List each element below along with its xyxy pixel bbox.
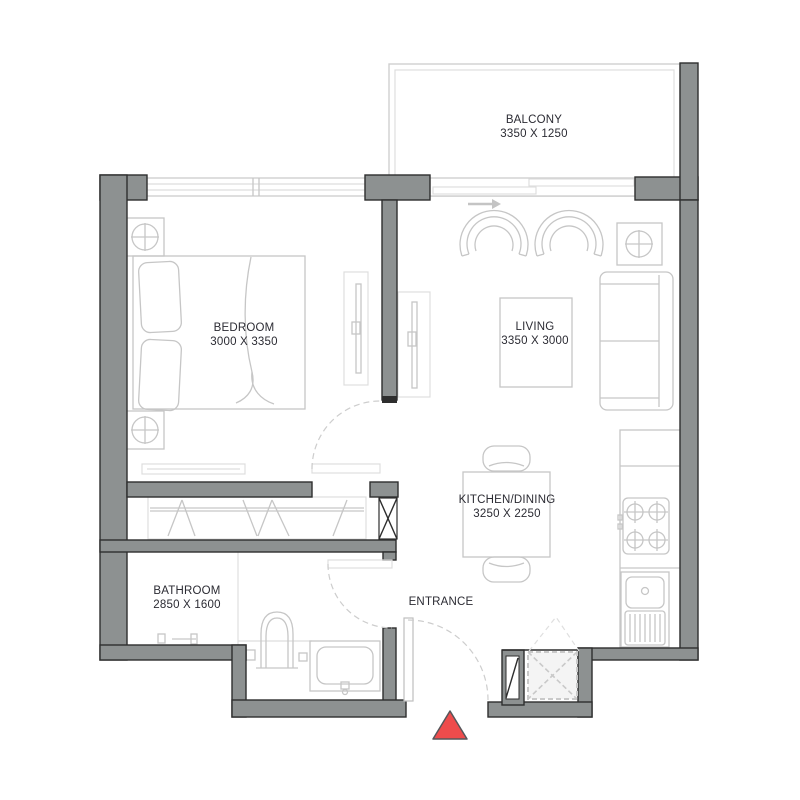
- bedroom-label: BEDROOM: [214, 322, 275, 334]
- bathroom-door: [328, 560, 392, 628]
- nightstand-top: [126, 218, 164, 256]
- bathroom-fixtures: [158, 552, 380, 695]
- bedroom-dims: 3000 X 3350: [210, 336, 277, 348]
- floor-plan-page: BALCONY 3350 X 1250 BEDROOM 3000 X 3350 …: [0, 0, 800, 800]
- living-dims: 3350 X 3000: [501, 335, 568, 347]
- toilet-icon: [246, 612, 307, 668]
- floor-plan-drawing: BALCONY 3350 X 1250 BEDROOM 3000 X 3350 …: [0, 0, 800, 800]
- balcony-sliding-door: [430, 178, 635, 209]
- sofa: [600, 272, 673, 410]
- living-furniture: [398, 211, 673, 410]
- bedroom-tv-unit: [344, 272, 368, 385]
- kitchen-dining-dims: 3250 X 2250: [473, 508, 540, 520]
- entrance-label: ENTRANCE: [409, 596, 474, 608]
- living-tv-unit: [398, 292, 430, 397]
- bedroom-window: [147, 178, 365, 196]
- nightstand-bottom: [126, 411, 164, 449]
- entrance-side-panel: [502, 650, 524, 705]
- bed-bench: [142, 464, 245, 474]
- slide-direction-arrow-icon: [468, 199, 501, 209]
- bathroom-dims: 2850 X 1600: [153, 599, 220, 611]
- entrance-door: [404, 618, 488, 701]
- duct-shaft-small: [379, 498, 397, 539]
- bathroom-label: BATHROOM: [153, 585, 220, 597]
- balcony-label: BALCONY: [506, 114, 562, 126]
- armchair: [535, 211, 603, 256]
- pillow: [138, 261, 182, 333]
- living-label: LIVING: [516, 321, 555, 333]
- bedroom-door: [312, 401, 380, 473]
- shower-fittings: [158, 634, 197, 644]
- kitchen-dining-label: KITCHEN/DINING: [459, 494, 556, 506]
- balcony-dims: 3350 X 1250: [500, 128, 567, 140]
- duvet-fold: [252, 372, 274, 404]
- dining-chair: [483, 446, 530, 471]
- armchair: [460, 211, 528, 256]
- entrance-marker-triangle-icon: [433, 711, 467, 739]
- wardrobe-closet: [148, 497, 366, 539]
- pillow: [138, 339, 182, 411]
- duct-shaft-entrance: [528, 617, 579, 699]
- hanger-marks: [168, 500, 347, 536]
- side-table-lamp: [617, 223, 662, 265]
- vanity-basin-icon: [310, 641, 380, 695]
- dining-chair: [483, 557, 530, 582]
- kitchen: [463, 430, 680, 648]
